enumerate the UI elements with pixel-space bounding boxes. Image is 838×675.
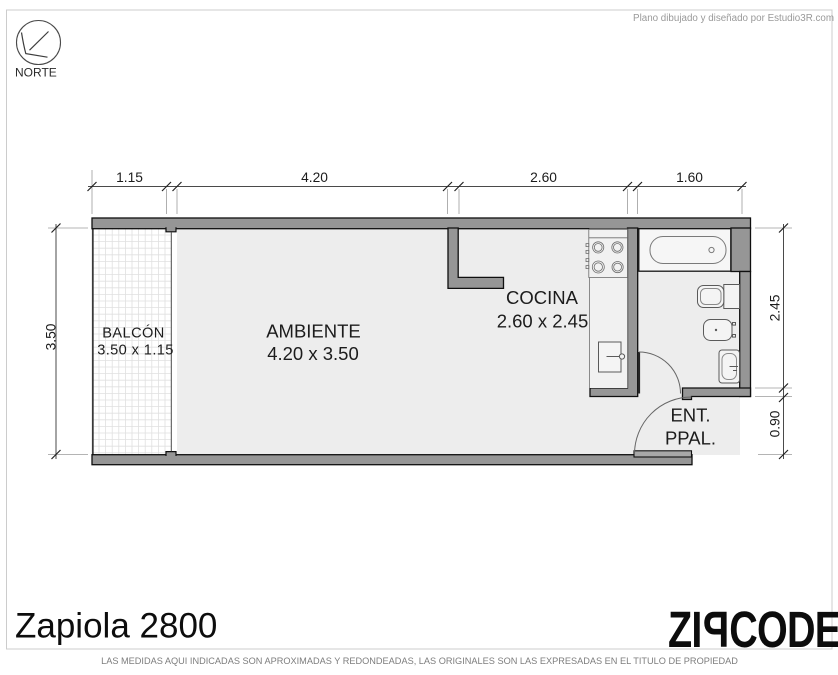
svg-text:BALCÓN: BALCÓN [102,325,164,342]
svg-text:0.90: 0.90 [768,410,783,437]
svg-text:Plano dibujado y diseñado por: Plano dibujado y diseñado por Estudio3R.… [633,13,834,24]
svg-text:2.60: 2.60 [530,170,557,185]
svg-text:1.60: 1.60 [676,170,703,185]
svg-text:PPAL.: PPAL. [665,428,716,449]
svg-text:COCINA: COCINA [506,287,579,308]
svg-text:2.45: 2.45 [768,294,783,321]
svg-text:2.60 x 2.45: 2.60 x 2.45 [497,311,589,332]
svg-text:4.20 x 3.50: 4.20 x 3.50 [267,343,359,364]
svg-text:4.20: 4.20 [301,170,328,185]
svg-text:3.50 x 1.15: 3.50 x 1.15 [97,343,174,359]
svg-text:Zapiola 2800: Zapiola 2800 [15,607,217,646]
svg-text:P: P [703,601,729,658]
svg-text:NORTE: NORTE [15,66,57,80]
svg-text:ZI: ZI [668,601,702,658]
svg-text:CODE: CODE [729,601,838,658]
svg-text:LAS MEDIDAS AQUI INDICADAS SON: LAS MEDIDAS AQUI INDICADAS SON APROXIMAD… [101,656,738,666]
svg-text:1.15: 1.15 [116,170,143,185]
svg-text:AMBIENTE: AMBIENTE [266,321,361,342]
svg-text:3.50: 3.50 [44,323,59,350]
svg-text:ENT.: ENT. [670,405,710,426]
